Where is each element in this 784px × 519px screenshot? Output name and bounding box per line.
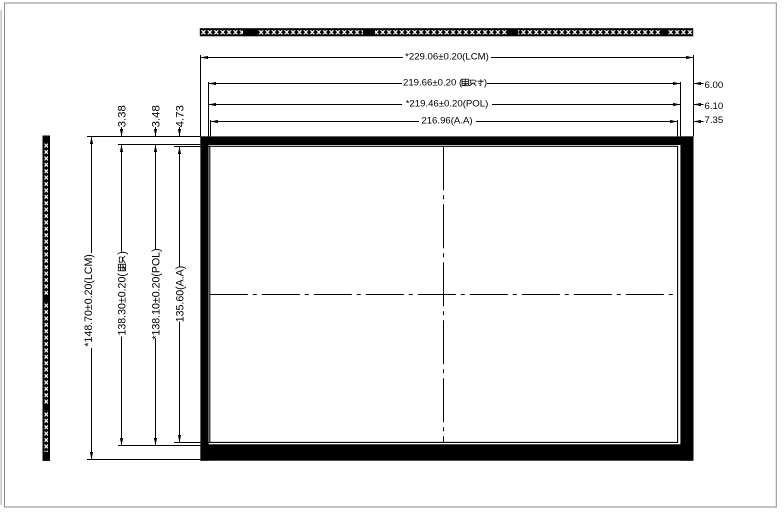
svg-text:): ) [484, 78, 487, 89]
svg-text:*229.06±0.20(LCM): *229.06±0.20(LCM) [405, 52, 489, 63]
svg-text:7.35: 7.35 [705, 115, 724, 126]
svg-text:*219.46±0.20(POL): *219.46±0.20(POL) [406, 99, 489, 110]
svg-text:138.30±0.20(: 138.30±0.20( [117, 273, 129, 336]
svg-text:3.38: 3.38 [117, 105, 129, 127]
svg-text:4.73: 4.73 [175, 105, 187, 127]
svg-text:*138.10±0.20(POL): *138.10±0.20(POL) [151, 248, 163, 339]
svg-text:): ) [117, 251, 129, 255]
svg-text:6.10: 6.10 [705, 101, 724, 112]
svg-text:219.66±0.20 (: 219.66±0.20 ( [403, 78, 463, 89]
svg-text:6.00: 6.00 [705, 80, 724, 91]
svg-text:135.60(A.A): 135.60(A.A) [175, 266, 187, 323]
svg-text:216.96(A.A): 216.96(A.A) [421, 115, 472, 126]
svg-text:*148.70±0.20(LCM): *148.70±0.20(LCM) [83, 254, 95, 346]
svg-text:3.48: 3.48 [151, 105, 163, 127]
